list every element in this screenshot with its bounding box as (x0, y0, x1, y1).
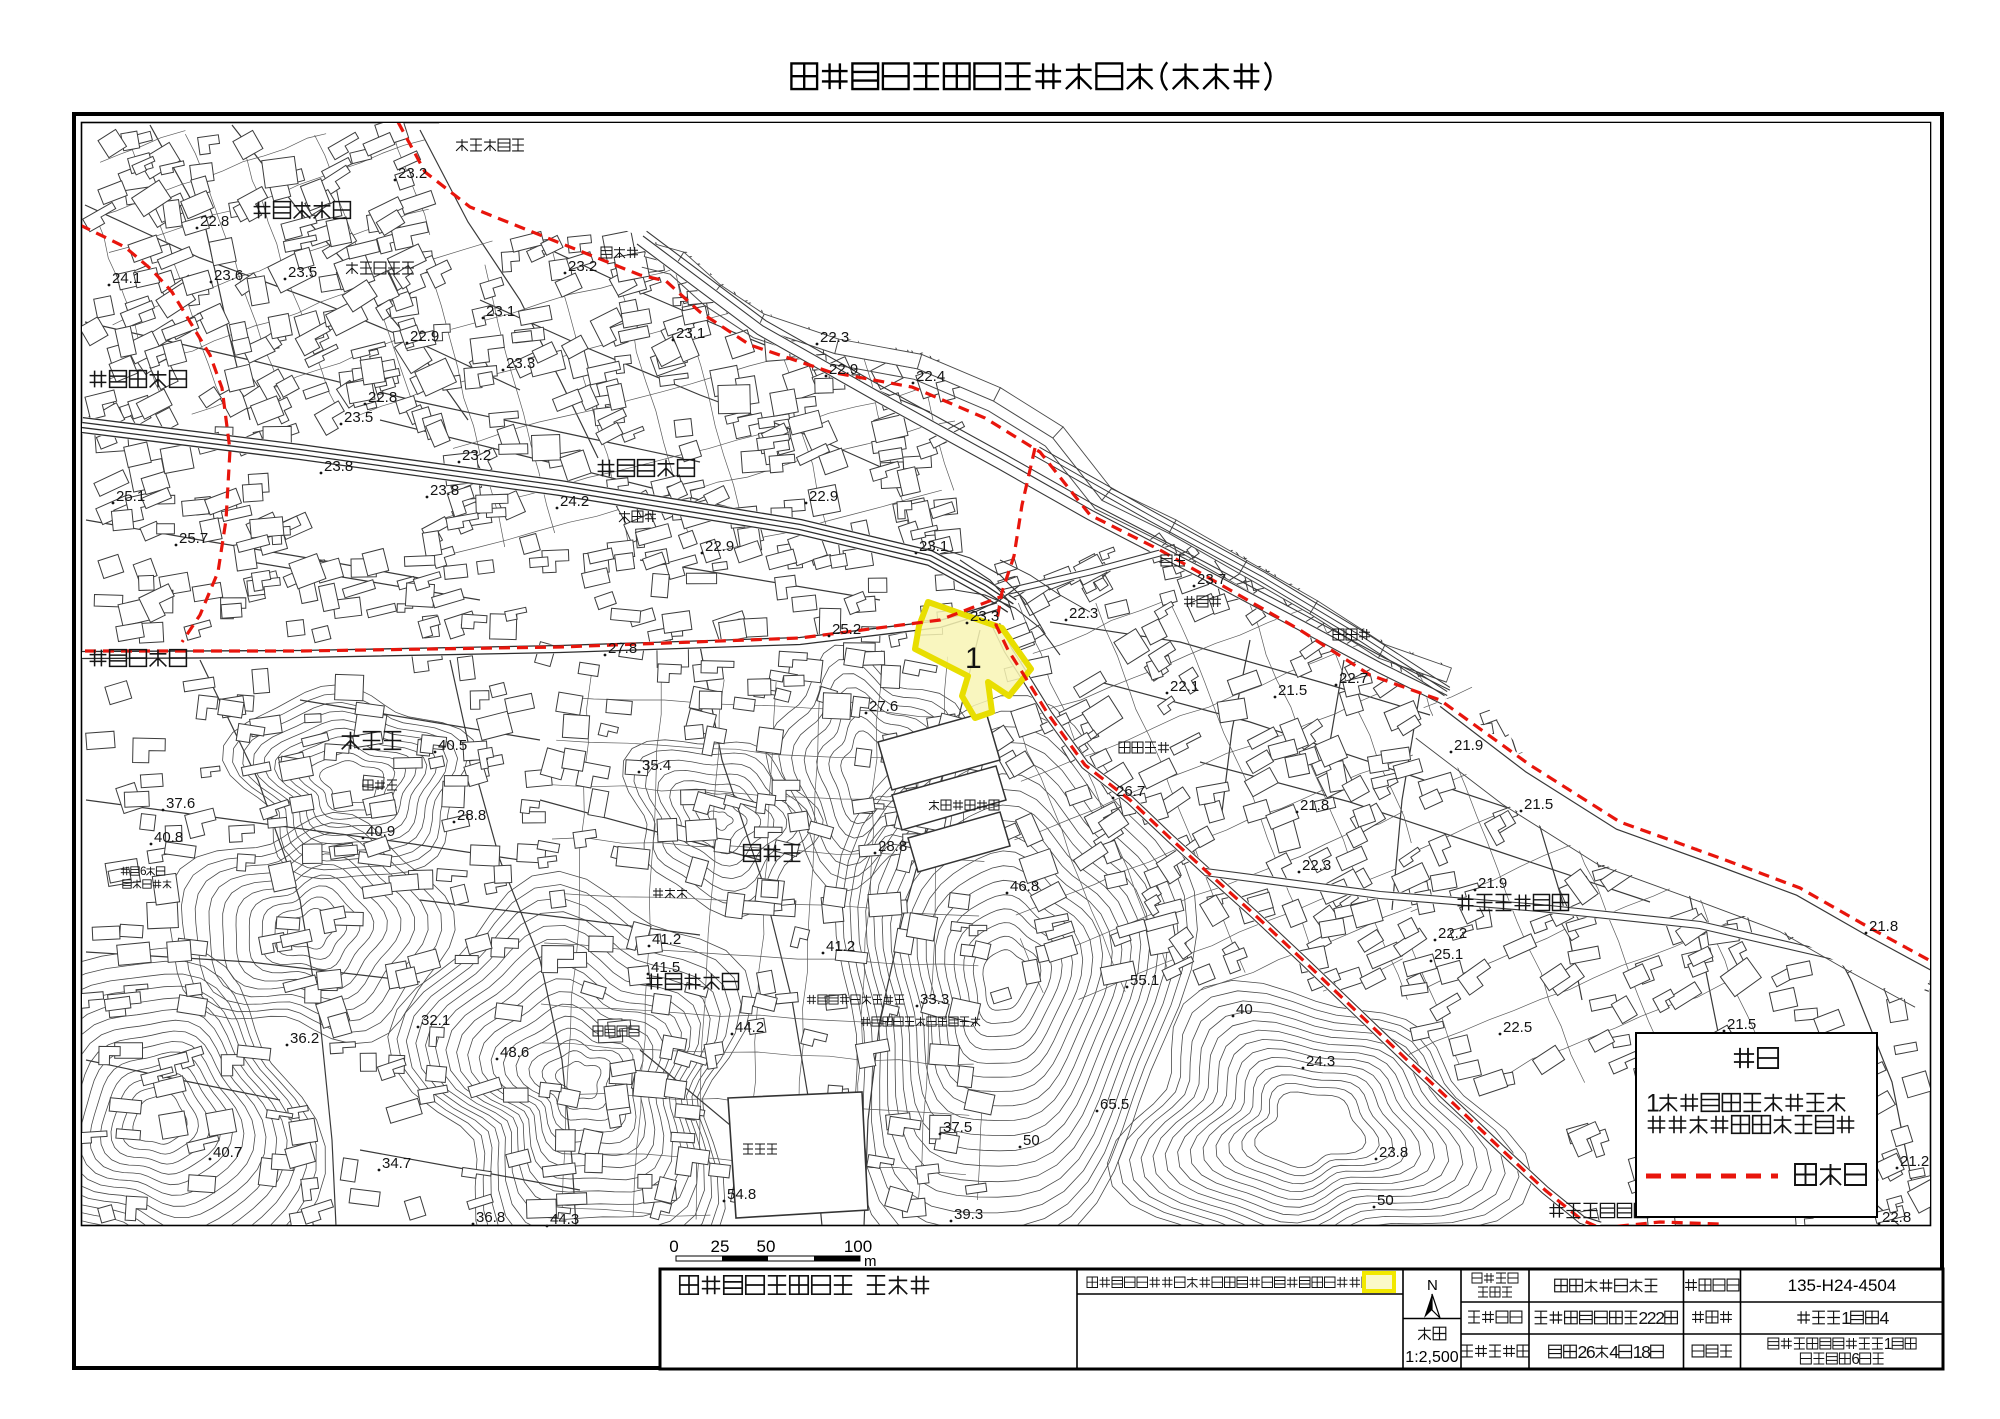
svg-text:40.8: 40.8 (154, 829, 183, 846)
svg-text:36.8: 36.8 (476, 1209, 505, 1226)
svg-text:25.1: 25.1 (1434, 946, 1463, 963)
svg-text:28.8: 28.8 (457, 807, 486, 824)
svg-text:6: 6 (1586, 1342, 1596, 1362)
svg-text:34.7: 34.7 (382, 1155, 411, 1172)
svg-text:50: 50 (1023, 1132, 1040, 1149)
svg-text:22.8: 22.8 (200, 213, 229, 230)
svg-text:41.5: 41.5 (651, 959, 680, 976)
svg-text:24.2: 24.2 (560, 493, 589, 510)
svg-text:23.3: 23.3 (506, 355, 535, 372)
svg-text:22.3: 22.3 (1069, 605, 1098, 622)
svg-text:23.1: 23.1 (676, 325, 705, 342)
svg-text:40.5: 40.5 (438, 737, 467, 754)
svg-text:23.6: 23.6 (214, 267, 243, 284)
svg-text:40: 40 (1236, 1001, 1253, 1018)
svg-text:44.2: 44.2 (735, 1019, 764, 1036)
svg-text:23.5: 23.5 (288, 264, 317, 281)
svg-text:0: 0 (669, 1237, 678, 1256)
svg-text:23.8: 23.8 (430, 482, 459, 499)
svg-text:35.4: 35.4 (642, 757, 671, 774)
svg-text:22.3: 22.3 (820, 329, 849, 346)
svg-text:22.8: 22.8 (368, 389, 397, 406)
svg-text:22.8: 22.8 (1882, 1209, 1911, 1226)
svg-text:41.2: 41.2 (826, 938, 855, 955)
svg-text:37.6: 37.6 (166, 795, 195, 812)
svg-text:28.8: 28.8 (878, 838, 907, 855)
svg-text:1: 1 (1884, 1336, 1893, 1353)
svg-text:26.7: 26.7 (1116, 783, 1145, 800)
svg-text:24.3: 24.3 (1306, 1053, 1335, 1070)
svg-text:23.8: 23.8 (1379, 1144, 1408, 1161)
svg-text:6: 6 (1851, 1351, 1860, 1368)
svg-text:21.8: 21.8 (1869, 918, 1898, 935)
svg-text:N: N (1427, 1277, 1438, 1294)
svg-text:2: 2 (1655, 1308, 1665, 1328)
svg-text:23.1: 23.1 (919, 538, 948, 555)
svg-text:40.9: 40.9 (366, 823, 395, 840)
svg-text:22.9: 22.9 (829, 361, 858, 378)
svg-text:54.8: 54.8 (727, 1186, 756, 1203)
svg-text:22.2: 22.2 (1438, 925, 1467, 942)
svg-text:40.7: 40.7 (213, 1144, 242, 1161)
svg-text:44.3: 44.3 (550, 1211, 579, 1228)
svg-text:8: 8 (1641, 1342, 1651, 1362)
svg-text:21.9: 21.9 (1454, 737, 1483, 754)
svg-text:23.1: 23.1 (486, 303, 515, 320)
svg-text:21.5: 21.5 (1524, 796, 1553, 813)
svg-text:135-H24-4504: 135-H24-4504 (1788, 1276, 1897, 1295)
svg-text:23.2: 23.2 (568, 258, 597, 275)
svg-text:39.3: 39.3 (954, 1206, 983, 1223)
svg-text:37.5: 37.5 (943, 1119, 972, 1136)
svg-text:24.1: 24.1 (112, 270, 141, 287)
svg-text:22.9: 22.9 (705, 538, 734, 555)
svg-text:41.2: 41.2 (652, 931, 681, 948)
svg-text:32.1: 32.1 (421, 1012, 450, 1029)
svg-text:23.8: 23.8 (324, 458, 353, 475)
svg-text:22.5: 22.5 (1503, 1019, 1532, 1036)
svg-text:21.5: 21.5 (1727, 1016, 1756, 1033)
svg-text:27.8: 27.8 (608, 640, 637, 657)
svg-text:21.2: 21.2 (1900, 1153, 1929, 1170)
svg-text:23.3: 23.3 (970, 608, 999, 625)
svg-text:4: 4 (1609, 1342, 1619, 1362)
svg-text:50: 50 (757, 1237, 776, 1256)
svg-text:23.2: 23.2 (462, 447, 491, 464)
svg-text:1: 1 (1841, 1308, 1851, 1328)
svg-text:22.4: 22.4 (916, 368, 945, 385)
svg-text:33.3: 33.3 (920, 991, 949, 1008)
svg-text:23.5: 23.5 (344, 409, 373, 426)
svg-text:22.9: 22.9 (410, 328, 439, 345)
svg-text:50: 50 (1377, 1192, 1394, 1209)
svg-text:22.9: 22.9 (809, 488, 838, 505)
svg-text:48.6: 48.6 (500, 1044, 529, 1061)
svg-text:25.1: 25.1 (116, 488, 145, 505)
svg-text:23.2: 23.2 (398, 165, 427, 182)
svg-text:65.5: 65.5 (1100, 1096, 1129, 1113)
svg-text:1:2,500: 1:2,500 (1405, 1349, 1458, 1366)
svg-text:22.1: 22.1 (1170, 678, 1199, 695)
svg-text:55.1: 55.1 (1130, 972, 1159, 989)
svg-text:36.2: 36.2 (290, 1030, 319, 1047)
svg-text:21.8: 21.8 (1300, 797, 1329, 814)
svg-text:46.8: 46.8 (1010, 878, 1039, 895)
svg-text:1: 1 (965, 642, 982, 675)
svg-text:21.9: 21.9 (1478, 875, 1507, 892)
svg-text:25.2: 25.2 (832, 621, 861, 638)
svg-text:22.7: 22.7 (1339, 670, 1368, 687)
svg-text:21.5: 21.5 (1278, 682, 1307, 699)
svg-text:1: 1 (1646, 1090, 1660, 1117)
svg-text:27.6: 27.6 (869, 698, 898, 715)
svg-text:25: 25 (711, 1237, 730, 1256)
svg-text:m: m (864, 1253, 877, 1270)
svg-text:6: 6 (140, 864, 147, 878)
svg-text:4: 4 (1880, 1308, 1890, 1328)
svg-text:25.7: 25.7 (179, 530, 208, 547)
svg-text:22.3: 22.3 (1302, 857, 1331, 874)
svg-text:23.7: 23.7 (1197, 571, 1226, 588)
